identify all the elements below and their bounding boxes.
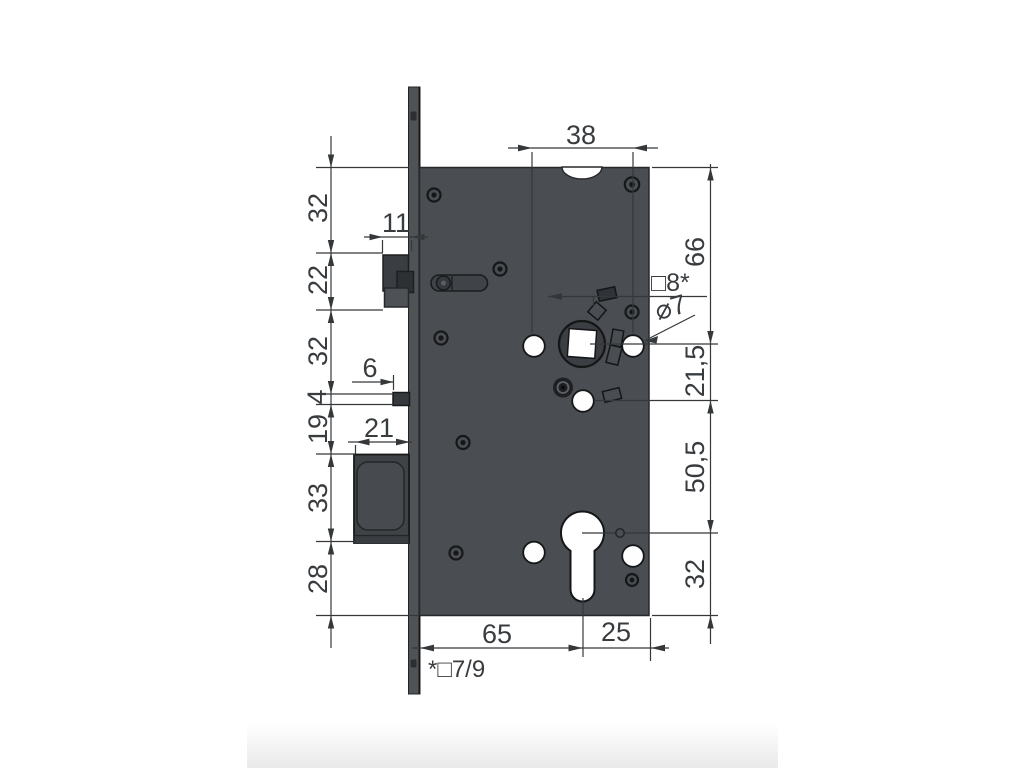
dim-bottom-25: 25 [601,617,631,647]
dim-left-19: 19 [303,414,333,444]
dim-left-33: 33 [303,483,333,513]
faceplate-screw-slot-top [411,112,417,121]
lock-technical-drawing: 38 32 22 32 4 19 33 28 11 6 21 66 21,5 5… [0,0,1024,768]
small-pin-hole [616,529,624,537]
dim-right-66: 66 [680,237,710,267]
faceplate [409,87,421,694]
dim-bottom-65: 65 [482,619,512,649]
dim-left-32b: 32 [303,336,333,366]
dim-right-50-5: 50,5 [680,441,710,494]
faceplate-screw-slot-bottom [411,660,417,668]
dim-left-28: 28 [303,564,333,594]
latch-bolt [383,255,414,307]
spring-pin [431,275,488,291]
bottom-page-shadow [247,723,778,768]
auxiliary-bolt [393,393,410,406]
dim-6: 6 [362,353,377,383]
deadbolt [354,455,409,544]
dim-left-22: 22 [303,265,333,295]
dim-left-32a: 32 [303,193,333,223]
dim-right-32: 32 [680,559,710,589]
dim-right-21-5: 21,5 [680,345,710,398]
dim-21: 21 [364,413,394,443]
pivot-rivet [553,378,573,398]
footnote-square-7-9: *□7/9 [428,656,485,683]
dim-11: 11 [382,208,410,238]
dim-top-38: 38 [566,120,596,150]
dim-left-4: 4 [302,389,332,404]
